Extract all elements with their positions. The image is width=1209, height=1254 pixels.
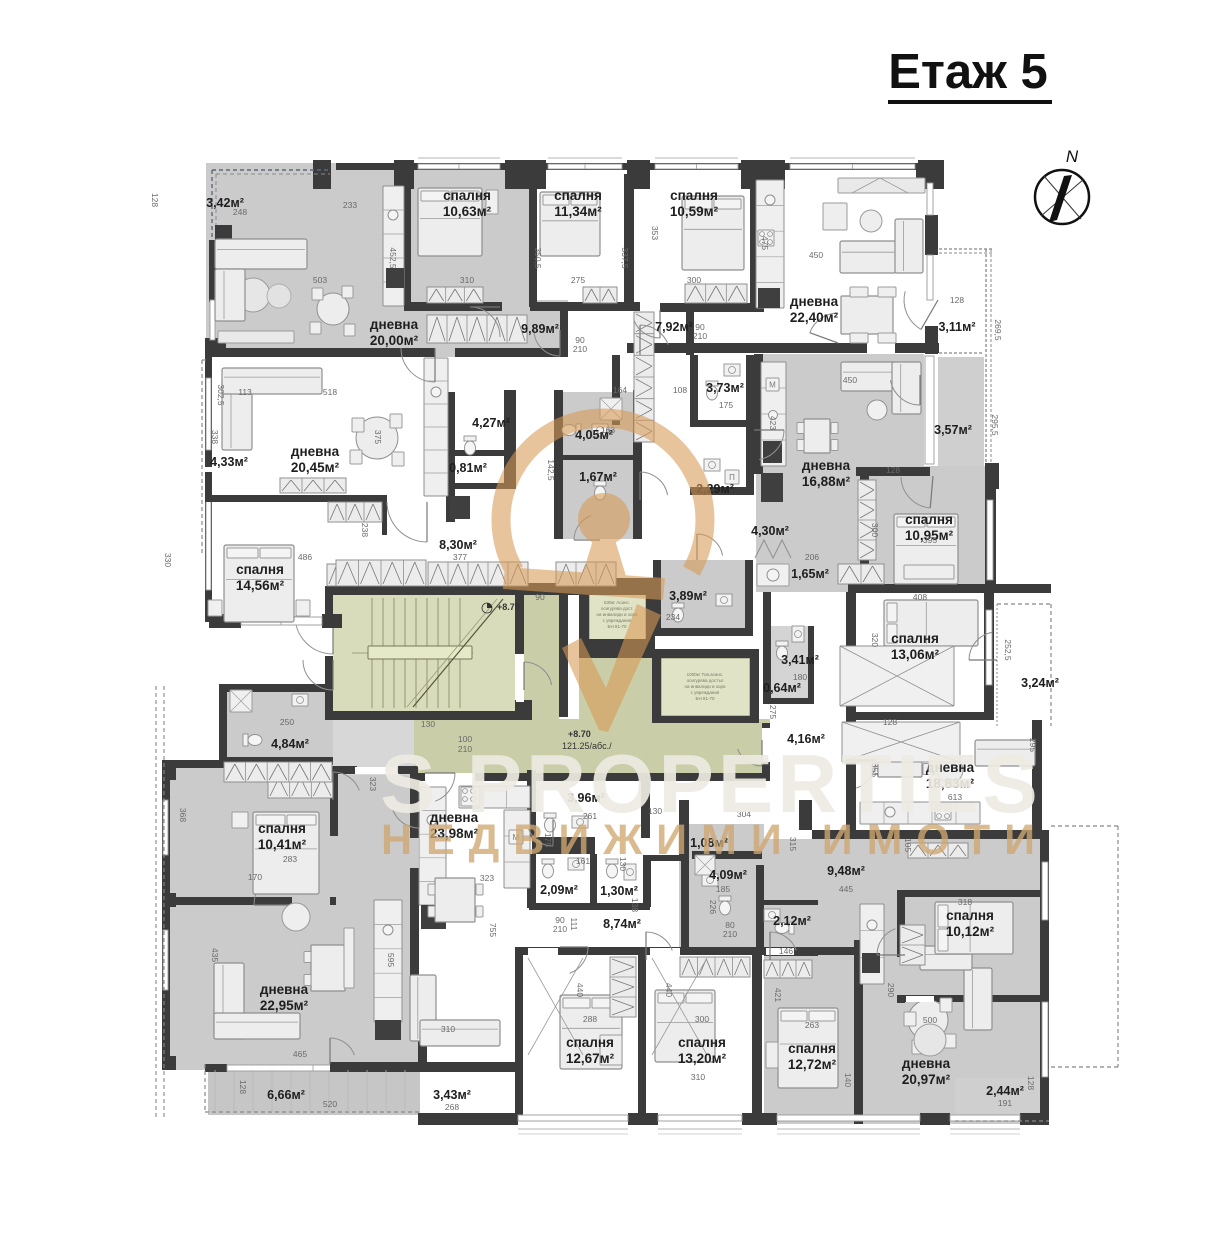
svg-text:+8.70: +8.70 [497,602,520,612]
svg-text:337,5: 337,5 [620,247,630,269]
svg-text:с увреждания: с увреждания [603,618,632,623]
svg-text:395: 395 [923,535,937,545]
svg-text:11,34м²: 11,34м² [554,204,602,219]
svg-text:268: 268 [445,1102,459,1112]
svg-text:спалня: спалня [946,908,994,923]
svg-text:170: 170 [248,872,262,882]
svg-text:дневна: дневна [370,317,419,332]
svg-text:14,56м²: 14,56м² [236,578,285,593]
svg-text:300: 300 [870,523,880,537]
svg-text:10,59м²: 10,59м² [670,204,719,219]
svg-text:755: 755 [488,923,498,937]
svg-text:238: 238 [360,523,370,537]
svg-text:с увреждания: с увреждания [691,690,720,695]
svg-text:16,88м²: 16,88м² [802,474,851,489]
svg-text:10,41м²: 10,41м² [258,837,307,852]
svg-text:спалня: спалня [236,562,284,577]
svg-text:БН 81-70: БН 81-70 [608,624,627,629]
svg-text:128: 128 [238,1080,248,1094]
svg-text:2,44м²: 2,44м² [986,1084,1024,1098]
svg-text:503: 503 [313,275,327,285]
svg-text:452,5: 452,5 [388,247,398,269]
svg-text:108: 108 [673,385,687,395]
svg-text:спалня: спалня [670,188,718,203]
svg-text:спалня: спалня [443,188,491,203]
svg-text:128: 128 [886,465,900,475]
svg-text:М: М [769,380,776,389]
svg-text:210: 210 [573,344,587,354]
svg-text:10,12м²: 10,12м² [946,924,995,939]
svg-text:180: 180 [793,672,807,682]
svg-text:423: 423 [768,416,778,430]
svg-text:408: 408 [913,592,927,602]
svg-text:9,89м²: 9,89м² [521,322,559,336]
svg-text:спалня: спалня [566,1035,614,1050]
svg-text:3,24м²: 3,24м² [1021,676,1059,690]
svg-text:спалня: спалня [678,1035,726,1050]
svg-text:4,09м²: 4,09м² [709,868,747,882]
svg-text:368: 368 [178,808,188,822]
svg-text:520: 520 [323,1099,337,1109]
svg-text:595: 595 [386,953,396,967]
svg-text:130: 130 [421,719,435,729]
svg-text:1,67м²: 1,67м² [579,470,617,484]
svg-text:НЕДВИЖИМИ ИМОТИ: НЕДВИЖИМИ ИМОТИ [381,816,1049,864]
svg-text:440: 440 [664,983,674,997]
svg-text:440: 440 [575,983,585,997]
svg-text:283: 283 [283,854,297,864]
svg-text:323: 323 [368,777,378,791]
svg-text:450: 450 [809,250,823,260]
svg-text:7,92м²: 7,92м² [655,320,693,334]
svg-text:дневна: дневна [291,444,340,459]
svg-text:269,5: 269,5 [993,319,1003,341]
svg-text:518: 518 [323,387,337,397]
svg-text:10,63м²: 10,63м² [443,204,492,219]
svg-text:3,89м²: 3,89м² [669,589,707,603]
svg-text:323: 323 [480,873,494,883]
svg-text:128: 128 [950,295,964,305]
svg-text:234: 234 [666,612,680,622]
svg-text:338: 338 [210,430,220,444]
svg-text:4,27м²: 4,27м² [472,416,510,430]
svg-text:445: 445 [839,884,853,894]
svg-text:1000кг Тов.асанс.: 1000кг Тов.асанс. [687,672,724,677]
svg-text:спалня: спалня [891,631,939,646]
svg-text:90: 90 [535,592,545,602]
svg-text:0,64м²: 0,64м² [763,681,801,695]
svg-text:350,5: 350,5 [533,247,543,269]
svg-text:421: 421 [773,988,783,1002]
svg-text:4,84м²: 4,84м² [271,737,309,751]
svg-text:275: 275 [571,275,585,285]
svg-text:на инвалиди и хора: на инвалиди и хора [596,612,638,617]
svg-text:спалня: спалня [554,188,602,203]
svg-text:4,30м²: 4,30м² [751,524,789,538]
svg-text:3,43м²: 3,43м² [433,1088,471,1102]
svg-text:на инвалиди и хора: на инвалиди и хора [684,684,726,689]
svg-text:142,5: 142,5 [546,459,556,481]
svg-text:210: 210 [723,929,737,939]
svg-text:2,12м²: 2,12м² [773,914,811,928]
svg-text:8,30м²: 8,30м² [439,538,477,552]
svg-text:111: 111 [569,918,579,931]
svg-text:дневна: дневна [802,458,851,473]
svg-text:спалня: спалня [258,821,306,836]
svg-text:295,5: 295,5 [990,414,1000,436]
svg-text:128: 128 [1026,1076,1036,1090]
svg-text:20,97м²: 20,97м² [902,1072,951,1087]
svg-text:13,20м²: 13,20м² [678,1051,727,1066]
svg-text:спалня: спалня [788,1041,836,1056]
svg-text:20,45м²: 20,45м² [291,460,340,475]
svg-text:128: 128 [150,193,160,207]
svg-text:248: 248 [233,207,247,217]
svg-text:210: 210 [553,924,567,934]
svg-text:осигурява достъп: осигурява достъп [687,678,724,683]
svg-text:300: 300 [695,1014,709,1024]
svg-text:191: 191 [998,1098,1012,1108]
svg-text:290: 290 [886,983,896,997]
svg-text:302,5: 302,5 [216,384,226,406]
svg-text:175: 175 [719,400,733,410]
svg-text:435: 435 [210,948,220,962]
svg-text:226: 226 [708,900,718,914]
svg-text:дневна: дневна [902,1056,951,1071]
svg-text:N: N [1066,147,1079,166]
svg-text:288: 288 [583,1014,597,1024]
svg-text:330: 330 [163,553,173,567]
svg-text:12,72м²: 12,72м² [788,1057,837,1072]
svg-text:375: 375 [373,430,383,444]
svg-text:8,74м²: 8,74м² [603,917,641,931]
svg-text:2,09м²: 2,09м² [540,883,578,897]
svg-text:3,41м²: 3,41м² [781,653,819,667]
svg-text:113: 113 [238,387,252,397]
svg-text:310: 310 [441,1024,455,1034]
svg-text:450: 450 [843,375,857,385]
svg-text:3,57м²: 3,57м² [934,423,972,437]
svg-text:630кг Асанс.: 630кг Асанс. [604,600,630,605]
svg-text:500: 500 [923,1015,937,1025]
svg-text:1,65м²: 1,65м² [791,567,829,581]
svg-text:210: 210 [693,331,707,341]
svg-text:140: 140 [843,1073,853,1087]
svg-text:486: 486 [298,552,312,562]
svg-text:13,06м²: 13,06м² [891,647,940,662]
svg-text:206: 206 [805,552,819,562]
svg-text:377: 377 [453,552,467,562]
svg-text:320: 320 [870,633,880,647]
svg-text:233: 233 [343,200,357,210]
svg-text:138: 138 [630,898,640,912]
svg-text:318: 318 [958,897,972,907]
svg-text:465: 465 [293,1049,307,1059]
svg-text:22,40м²: 22,40м² [790,310,839,325]
svg-text:263: 263 [805,1020,819,1030]
svg-text:осигурява дост.: осигурява дост. [601,606,633,611]
svg-text:22,95м²: 22,95м² [260,998,309,1013]
svg-text:475: 475 [760,236,770,250]
svg-text:20,00м²: 20,00м² [370,333,419,348]
svg-text:БН 81-70: БН 81-70 [696,696,715,701]
svg-text:164: 164 [613,385,627,395]
svg-text:353: 353 [650,226,660,240]
svg-text:дневна: дневна [260,982,309,997]
svg-text:Етаж 5: Етаж 5 [888,45,1048,99]
svg-text:310: 310 [691,1072,705,1082]
svg-text:300: 300 [687,275,701,285]
svg-text:0,81м²: 0,81м² [449,461,487,475]
svg-text:спалня: спалня [905,512,953,527]
svg-text:3,11м²: 3,11м² [938,320,975,334]
svg-text:12,67м²: 12,67м² [566,1051,615,1066]
svg-text:250: 250 [280,717,294,727]
svg-text:П: П [729,473,735,482]
svg-text:146: 146 [779,946,793,956]
svg-text:185: 185 [716,884,730,894]
svg-text:9,48м²: 9,48м² [827,864,865,878]
svg-text:1,30м²: 1,30м² [600,884,638,898]
svg-text:3,73м²: 3,73м² [706,381,744,395]
svg-text:252,5: 252,5 [1003,639,1013,661]
svg-text:дневна: дневна [790,294,839,309]
svg-text:128: 128 [883,717,897,727]
svg-text:6,66м²: 6,66м² [267,1088,305,1102]
svg-text:310: 310 [460,275,474,285]
svg-text:4,33м²: 4,33м² [210,455,248,469]
svg-text:275: 275 [768,705,778,719]
